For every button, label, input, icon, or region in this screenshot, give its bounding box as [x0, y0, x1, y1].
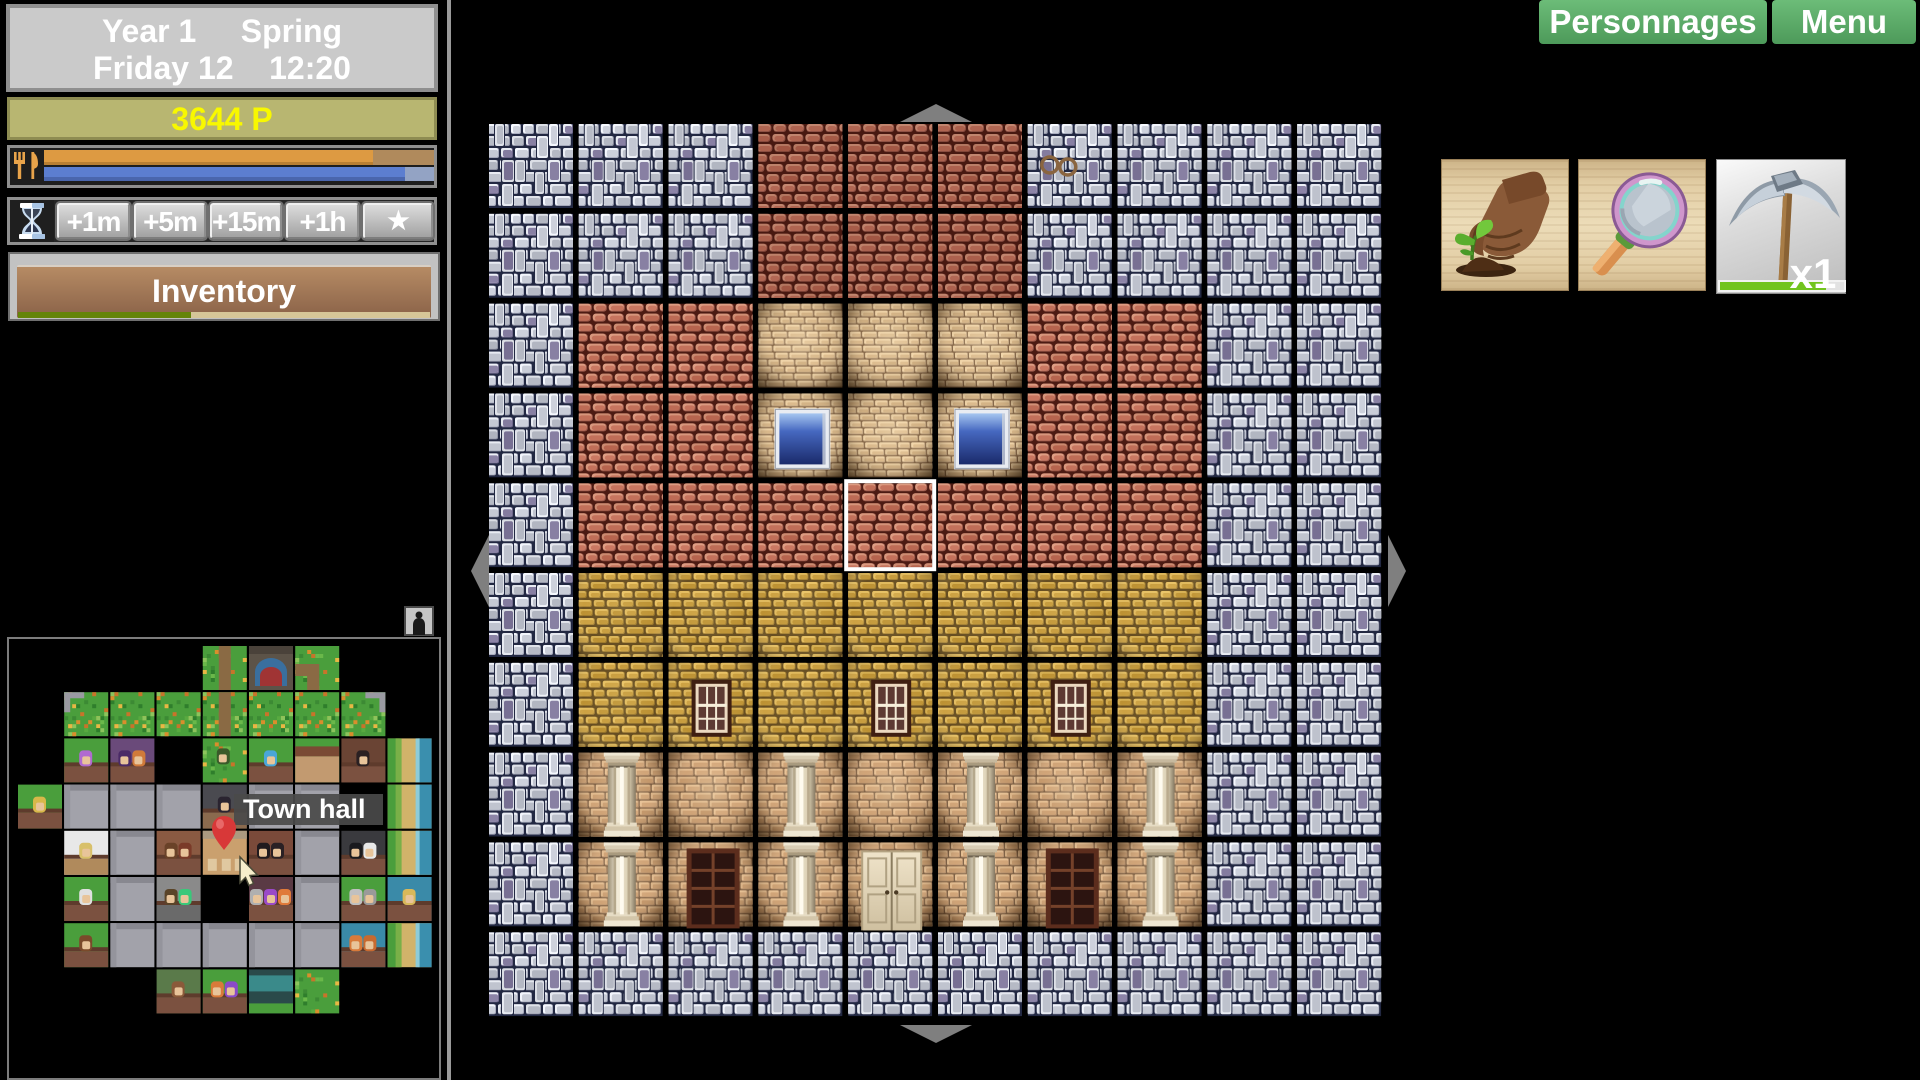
svg-text:x1: x1 — [1790, 250, 1837, 295]
svg-text:Town hall: Town hall — [243, 794, 366, 824]
